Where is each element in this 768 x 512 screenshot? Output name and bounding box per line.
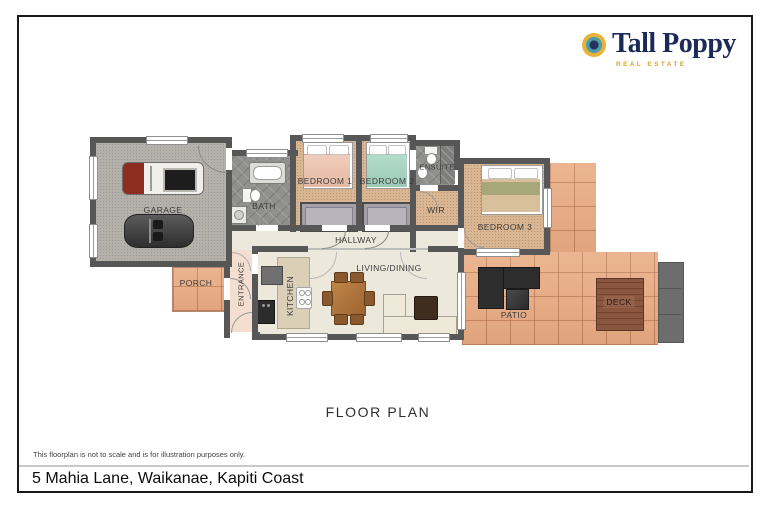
room-label-bath: BATH	[252, 201, 276, 211]
wall	[290, 135, 296, 232]
door-gap	[420, 185, 438, 191]
fridge	[261, 266, 283, 285]
door-gap	[458, 228, 464, 248]
wall	[458, 158, 550, 164]
washer-door	[234, 210, 244, 220]
bed-3-blanket	[482, 179, 540, 212]
floorplan-page: Tall Poppy REAL ESTATE	[0, 0, 768, 512]
window	[356, 333, 402, 342]
room-label-deck: DECK	[603, 296, 634, 308]
door-gap	[252, 254, 258, 274]
window	[418, 333, 450, 342]
room-label-bedroom1: BEDROOM 1	[298, 176, 353, 186]
dining-chair	[334, 314, 348, 325]
room-label-wir: WIR	[427, 205, 445, 215]
bathtub-basin	[253, 166, 282, 180]
car-windshield	[149, 219, 151, 243]
bathtub	[249, 162, 286, 184]
dining-chair	[350, 314, 364, 325]
window	[543, 188, 552, 228]
garden-steps	[658, 262, 684, 343]
oven	[257, 300, 275, 324]
cooktop	[296, 287, 312, 309]
door-gap	[410, 150, 416, 170]
footer-divider	[19, 465, 749, 467]
bed-3-pattern-band	[482, 182, 540, 195]
patio-strip-floor	[550, 163, 596, 255]
window	[89, 224, 98, 258]
dining-chair	[364, 291, 375, 306]
room-label-garage: GARAGE	[144, 205, 183, 215]
room-label-entrance: ENTRANCE	[237, 262, 246, 306]
sliding-door	[457, 272, 466, 330]
burner	[305, 299, 311, 305]
bed-1-pillow	[329, 145, 349, 155]
dining-chair	[322, 291, 333, 306]
room-label-hallway: HALLWAY	[335, 235, 377, 245]
room-label-bedroom3: BEDROOM 3	[478, 222, 533, 232]
room-label-ensuite: ENSUITE	[419, 163, 454, 172]
oven-knob	[267, 304, 270, 307]
tall-poppy-tagline: REAL ESTATE	[616, 61, 686, 68]
room-label-bedroom2: BEDROOM 2	[360, 176, 415, 186]
van-window	[163, 168, 197, 192]
window	[302, 134, 344, 143]
bed-3	[481, 165, 543, 215]
outdoor-table	[506, 289, 529, 310]
porch-floor	[172, 267, 226, 312]
bed-2-pillow	[388, 145, 406, 155]
tall-poppy-brand: Tall Poppy	[612, 28, 736, 60]
plan-title: FLOOR PLAN	[326, 404, 431, 420]
washing-machine	[230, 206, 247, 224]
dining-chair	[334, 272, 348, 283]
window	[476, 248, 520, 257]
tv-cabinet	[414, 296, 438, 320]
room-label-kitchen: KITCHEN	[285, 276, 295, 316]
room-label-porch: PORCH	[180, 278, 213, 288]
window	[370, 134, 408, 143]
window	[246, 149, 288, 158]
bed-2-pillow	[369, 145, 387, 155]
room-label-patio: PATIO	[501, 310, 527, 320]
burner	[305, 290, 311, 296]
outdoor-sofa-left-arm	[478, 267, 504, 309]
garden-steps-line	[659, 314, 681, 315]
van-windshield	[150, 166, 152, 191]
window	[89, 156, 98, 200]
car-seat	[153, 220, 163, 229]
garden-steps-line	[659, 288, 681, 289]
property-address: 5 Mahia Lane, Waikanae, Kapiti Coast	[32, 470, 304, 488]
convertible-car	[124, 214, 194, 248]
oven-knob	[262, 304, 265, 307]
disclaimer-text: This floorplan is not to scale and is fo…	[33, 450, 245, 459]
bed-1-pillow	[307, 145, 327, 155]
window	[286, 333, 328, 342]
van	[122, 162, 204, 195]
car-seat	[153, 232, 163, 241]
wall	[90, 261, 232, 267]
dining-table	[331, 281, 366, 316]
bed-3-pillow	[488, 168, 512, 179]
window	[146, 136, 188, 145]
bed-3-pillow	[514, 168, 538, 179]
dining-chair	[350, 272, 364, 283]
room-label-living: LIVING/DINING	[356, 263, 421, 273]
tall-poppy-logo-icon	[582, 33, 606, 57]
wall	[252, 246, 308, 252]
